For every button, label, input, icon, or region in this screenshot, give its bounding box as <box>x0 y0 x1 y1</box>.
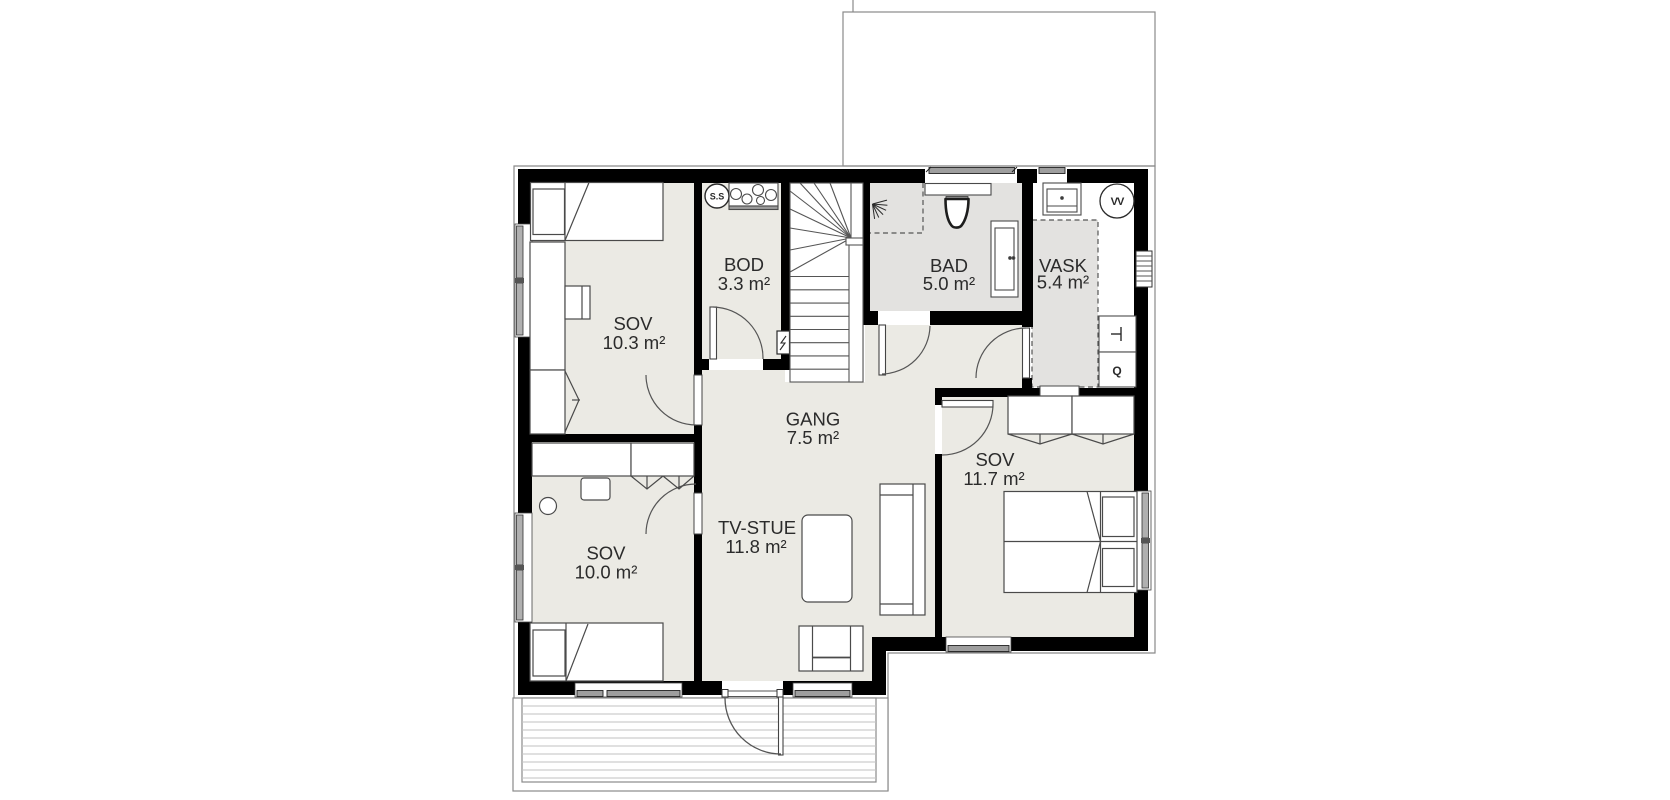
svg-text:5.4 m²: 5.4 m² <box>1037 272 1089 293</box>
svg-text:3.3 m²: 3.3 m² <box>718 273 770 294</box>
svg-text:11.8 m²: 11.8 m² <box>725 536 786 557</box>
svg-text:7.5 m²: 7.5 m² <box>787 427 839 448</box>
svg-text:SOV: SOV <box>975 449 1015 470</box>
svg-text:10.0 m²: 10.0 m² <box>575 562 638 583</box>
svg-text:SOV: SOV <box>586 543 626 564</box>
svg-text:TV-STUE: TV-STUE <box>718 517 796 538</box>
svg-text:Q: Q <box>1112 364 1121 378</box>
svg-text:10.3 m²: 10.3 m² <box>603 332 666 353</box>
svg-text:11.7 m²: 11.7 m² <box>963 468 1024 489</box>
svg-text:S.S: S.S <box>710 192 725 202</box>
svg-text:VV: VV <box>1111 196 1125 208</box>
svg-text:SOV: SOV <box>613 313 653 334</box>
svg-text:BOD: BOD <box>724 254 764 275</box>
svg-text:5.0 m²: 5.0 m² <box>923 273 975 294</box>
